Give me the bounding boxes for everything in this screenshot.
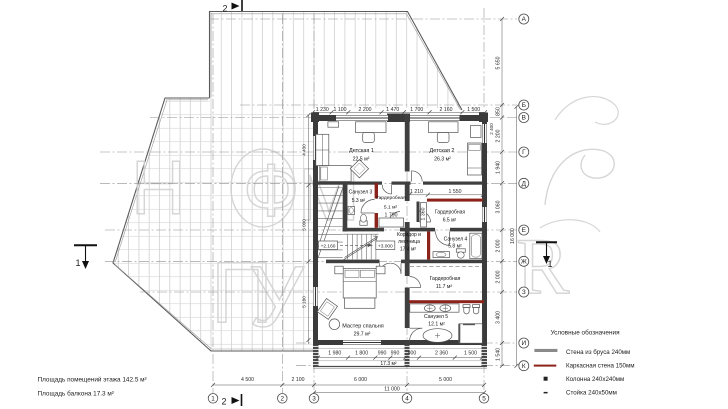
svg-text:17.3 м²: 17.3 м² bbox=[380, 361, 397, 367]
svg-text:2: 2 bbox=[222, 4, 227, 14]
svg-text:1 940: 1 940 bbox=[496, 161, 502, 174]
svg-text:5 000: 5 000 bbox=[439, 377, 452, 383]
svg-text:Площадь помещений этажа 142.5: Площадь помещений этажа 142.5 м² bbox=[38, 376, 147, 384]
svg-text:12.1 м²: 12.1 м² bbox=[428, 322, 445, 328]
svg-text:Гардеробная: Гардеробная bbox=[430, 276, 461, 282]
svg-text:17.4 м²: 17.4 м² bbox=[400, 247, 417, 253]
svg-text:5: 5 bbox=[482, 396, 486, 403]
svg-text:2 360: 2 360 bbox=[435, 350, 448, 356]
svg-text:1 800: 1 800 bbox=[355, 350, 368, 356]
svg-text:А: А bbox=[522, 16, 527, 23]
svg-text:850: 850 bbox=[496, 107, 502, 116]
svg-text:1 980: 1 980 bbox=[328, 350, 341, 356]
svg-text:1 550: 1 550 bbox=[449, 189, 462, 195]
svg-text:2 200: 2 200 bbox=[359, 107, 372, 113]
svg-text:В: В bbox=[522, 115, 526, 122]
svg-text:5 000: 5 000 bbox=[302, 219, 307, 231]
svg-text:6.5 м²: 6.5 м² bbox=[443, 218, 457, 224]
svg-text:1 230: 1 230 bbox=[316, 107, 329, 113]
svg-text:З: З bbox=[522, 289, 526, 296]
svg-text:22.5 м²: 22.5 м² bbox=[353, 157, 370, 163]
svg-text:4: 4 bbox=[405, 396, 409, 403]
svg-text:Стена из бруса 240мм: Стена из бруса 240мм bbox=[566, 349, 630, 356]
svg-text:2: 2 bbox=[281, 396, 285, 403]
svg-text:16 000: 16 000 bbox=[510, 228, 516, 244]
svg-text:Е: Е bbox=[522, 227, 526, 234]
svg-text:2 000: 2 000 bbox=[496, 270, 502, 283]
svg-text:1 210: 1 210 bbox=[410, 189, 423, 195]
svg-text:3 060: 3 060 bbox=[496, 200, 502, 213]
svg-text:1: 1 bbox=[547, 259, 552, 269]
svg-text:Санузел 5: Санузел 5 bbox=[424, 314, 448, 320]
svg-text:2 100: 2 100 bbox=[292, 377, 305, 383]
svg-text:1: 1 bbox=[75, 258, 80, 268]
svg-text:Мастер спальня: Мастер спальня bbox=[342, 324, 383, 330]
svg-text:Колонна 240х240мм: Колонна 240х240мм bbox=[566, 376, 624, 383]
svg-text:лестница: лестница bbox=[398, 239, 420, 245]
svg-text:Н: Н bbox=[131, 146, 186, 231]
svg-text:1 500: 1 500 bbox=[467, 107, 480, 113]
svg-text:2 400: 2 400 bbox=[489, 123, 494, 135]
svg-text:4 430: 4 430 bbox=[302, 144, 307, 156]
svg-text:5.3 м²: 5.3 м² bbox=[352, 198, 366, 204]
svg-text:У: У bbox=[249, 249, 305, 345]
svg-text:4 500: 4 500 bbox=[241, 377, 254, 383]
svg-text:11.7 м²: 11.7 м² bbox=[436, 284, 452, 290]
svg-text:+3.000: +3.000 bbox=[378, 243, 393, 249]
svg-text:Д: Д bbox=[522, 181, 527, 188]
svg-text:Б: Б bbox=[522, 102, 526, 109]
svg-text:5.8 м²: 5.8 м² bbox=[448, 244, 462, 250]
svg-text:Г: Г bbox=[522, 149, 526, 156]
svg-text:Условные обозначения: Условные обозначения bbox=[551, 328, 621, 336]
svg-text:2: 2 bbox=[221, 397, 226, 407]
svg-text:Коридор и: Коридор и bbox=[397, 232, 421, 238]
svg-text:3 400: 3 400 bbox=[496, 311, 502, 324]
svg-text:Ф: Ф bbox=[243, 149, 299, 232]
svg-text:1: 1 bbox=[211, 396, 215, 403]
svg-text:Санузел 3: Санузел 3 bbox=[349, 190, 373, 196]
svg-text:5.1 м²: 5.1 м² bbox=[384, 205, 398, 211]
svg-text:И: И bbox=[522, 340, 527, 347]
svg-text:5 650: 5 650 bbox=[496, 56, 502, 69]
svg-text:Гардеробная: Гардеробная bbox=[376, 195, 406, 201]
svg-text:Каркасная стена 150мм: Каркасная стена 150мм bbox=[566, 362, 635, 369]
svg-text:+2.160: +2.160 bbox=[321, 243, 336, 249]
svg-text:11 000: 11 000 bbox=[384, 386, 400, 392]
svg-text:26.3 м²: 26.3 м² bbox=[434, 157, 451, 163]
svg-text:29.7 м²: 29.7 м² bbox=[354, 332, 371, 338]
svg-text:Стойка 240х50мм: Стойка 240х50мм bbox=[566, 390, 617, 397]
svg-text:1 500: 1 500 bbox=[464, 350, 477, 356]
svg-text:2 200: 2 200 bbox=[496, 129, 502, 142]
svg-text:2 000: 2 000 bbox=[496, 239, 502, 252]
svg-text:1 700: 1 700 bbox=[410, 107, 423, 113]
svg-text:5 180: 5 180 bbox=[302, 296, 307, 308]
svg-text:R: R bbox=[516, 223, 570, 311]
svg-text:900: 900 bbox=[408, 350, 417, 356]
svg-text:3: 3 bbox=[312, 396, 316, 403]
svg-text:1 470: 1 470 bbox=[386, 107, 399, 113]
svg-text:Детская 1: Детская 1 bbox=[349, 148, 374, 154]
svg-text:990: 990 bbox=[391, 350, 400, 356]
svg-text:К: К bbox=[522, 363, 526, 370]
svg-text:Гардеробная: Гардеробная bbox=[435, 210, 466, 216]
svg-text:Детская 2: Детская 2 bbox=[430, 148, 455, 154]
svg-text:2 160: 2 160 bbox=[440, 107, 453, 113]
svg-text:1 360: 1 360 bbox=[421, 207, 427, 220]
svg-text:Санузел 4: Санузел 4 bbox=[444, 237, 468, 243]
svg-text:6 000: 6 000 bbox=[354, 377, 367, 383]
svg-text:Ж: Ж bbox=[521, 259, 527, 266]
svg-text:Площадь балкона 17.3 м²: Площадь балкона 17.3 м² bbox=[38, 390, 114, 398]
svg-text:1 540: 1 540 bbox=[496, 348, 502, 361]
svg-text:1 790: 1 790 bbox=[385, 213, 398, 219]
svg-text:1 100: 1 100 bbox=[334, 107, 347, 113]
svg-text:990: 990 bbox=[378, 350, 387, 356]
